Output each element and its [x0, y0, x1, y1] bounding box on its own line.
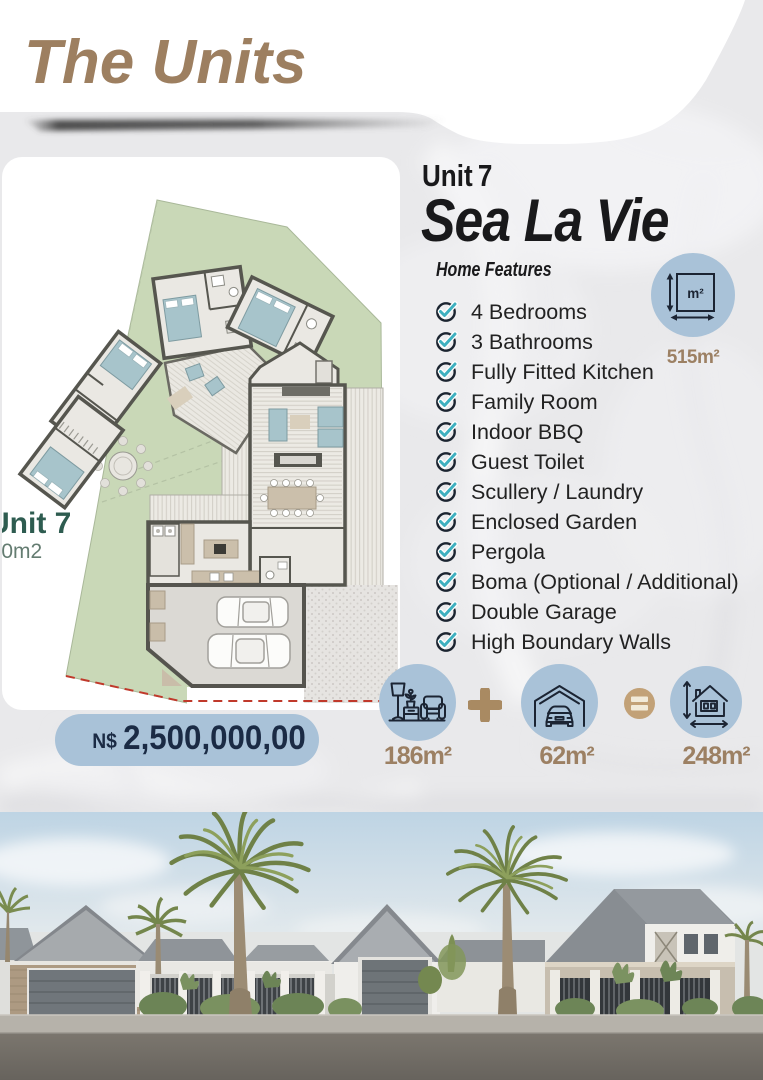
- svg-text:Fully Fitted Kitchen: Fully Fitted Kitchen: [471, 360, 654, 384]
- svg-text:Guest Toilet: Guest Toilet: [471, 450, 584, 474]
- svg-text:Enclosed Garden: Enclosed Garden: [471, 510, 637, 534]
- svg-text:Scullery / Laundry: Scullery / Laundry: [471, 480, 643, 504]
- svg-text:Family Room: Family Room: [471, 390, 598, 414]
- svg-text:4 Bedrooms: 4 Bedrooms: [471, 300, 587, 324]
- svg-text:540m2: 540m2: [2, 540, 42, 563]
- svg-text:Double Garage: Double Garage: [471, 600, 617, 624]
- svg-text:Unit 7: Unit 7: [2, 507, 71, 540]
- svg-text:Pergola: Pergola: [471, 540, 545, 564]
- svg-text:Indoor BBQ: Indoor BBQ: [471, 420, 583, 444]
- svg-text:m²: m²: [687, 286, 704, 301]
- svg-text:High Boundary Walls: High Boundary Walls: [471, 630, 671, 654]
- svg-text:Boma (Optional / Additional): Boma (Optional / Additional): [471, 570, 739, 594]
- svg-text:3 Bathrooms: 3 Bathrooms: [471, 330, 593, 354]
